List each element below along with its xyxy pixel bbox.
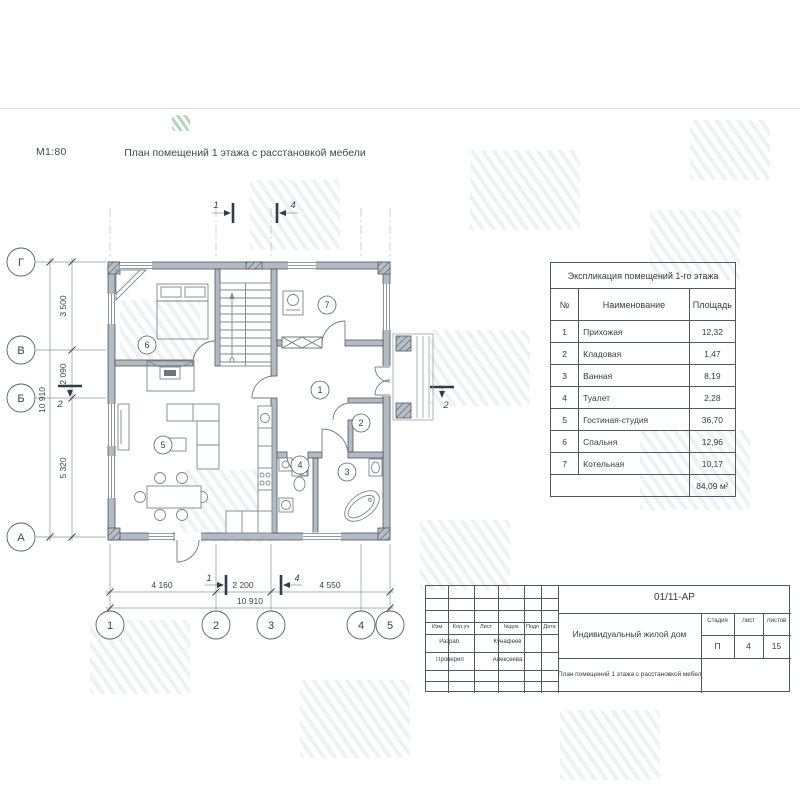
dim-left-1: 3 500	[58, 295, 68, 317]
table-row: 5 Гостиная-студия 36,70	[551, 409, 736, 431]
section-2-right: 2	[442, 400, 449, 411]
table-row: 2 Кладовая 1,47	[551, 343, 736, 365]
axis-v: В	[17, 345, 24, 357]
sheet-number: 4	[734, 641, 763, 651]
window	[108, 294, 116, 324]
table-row-total: 84,09 м²	[551, 475, 736, 497]
cell-num: 1	[551, 321, 579, 343]
section-1-top: 1	[213, 200, 218, 211]
cell-num: 6	[551, 431, 579, 453]
cell-area: 2,28	[689, 387, 735, 409]
axis-bubbles-bottom: 1 2 3 4 5	[96, 611, 404, 639]
bed	[157, 284, 208, 339]
table-row: 3 Ванная 8,19	[551, 365, 736, 387]
room-5-marker: 5	[160, 440, 165, 450]
storage-door	[333, 403, 350, 420]
col-header-area: Площадь	[689, 289, 735, 321]
col-header-name: Наименование	[579, 289, 690, 321]
stage-value: П	[701, 641, 734, 651]
tb-col-list: Лист	[474, 624, 498, 630]
room-1-marker: 1	[317, 385, 322, 395]
axis-bubbles-left: Г В Б А	[7, 248, 35, 551]
cell-num: 4	[551, 387, 579, 409]
axis-2: 2	[213, 620, 219, 632]
cell-total-area: 84,09 м²	[689, 475, 735, 497]
cell-area: 36,70	[689, 409, 735, 431]
section-1-bottom: 1	[206, 573, 211, 584]
window	[383, 284, 391, 330]
dim-bottom-total: 10 910	[237, 596, 263, 606]
explication-title: Экспликация помещений 1-го этажа	[551, 263, 736, 289]
bathtub	[339, 485, 385, 528]
axis-4: 4	[358, 620, 364, 632]
cell-num: 2	[551, 343, 579, 365]
dim-left-3: 5 320	[58, 457, 68, 479]
section-2-left: 2	[56, 399, 63, 410]
tv-console	[118, 404, 129, 450]
room-2-marker: 2	[358, 418, 363, 428]
explication-table: Экспликация помещений 1-го этажа № Наиме…	[550, 262, 736, 497]
cell-name: Кладовая	[579, 343, 690, 365]
cell-name: Прихожая	[579, 321, 690, 343]
cell-num: 7	[551, 453, 579, 475]
table-row: 1 Прихожая 12,32	[551, 321, 736, 343]
axis-a: А	[17, 532, 25, 544]
washing-machine	[279, 498, 293, 512]
entrance-porch	[393, 334, 433, 420]
section-4-bottom: 4	[294, 573, 299, 584]
table-row: 7 Котельная 10,17	[551, 453, 736, 475]
sofa	[167, 404, 219, 469]
room-4-marker: 4	[297, 460, 302, 470]
axis-g: Г	[18, 257, 24, 269]
project-name: Индивидуальный жилой дом	[558, 629, 701, 639]
axis-lines	[110, 208, 390, 258]
tb-col-ndok: №док	[498, 624, 524, 630]
tb-name-developed: Кунафеев	[474, 639, 541, 645]
window	[108, 404, 116, 446]
section-4-top: 4	[290, 200, 295, 211]
dim-left-2: 2 090	[58, 363, 68, 385]
dim-bottom-1: 4 160	[151, 580, 173, 590]
window	[288, 262, 316, 270]
doc-code: 01/11-АР	[558, 592, 791, 603]
boiler	[283, 291, 303, 315]
window	[149, 533, 173, 541]
axis-1: 1	[107, 620, 113, 632]
tb-role-developed: Разраб.	[426, 639, 474, 645]
cell-name: Гостиная-студия	[579, 409, 690, 431]
cell-area: 12,32	[689, 321, 735, 343]
cell-name: Ванная	[579, 365, 690, 387]
cell-name: Котельная	[579, 453, 690, 475]
tb-col-data: Дата	[541, 624, 558, 630]
room-3-marker: 3	[344, 467, 349, 477]
table-row: 6 Спальня 12,96	[551, 431, 736, 453]
bathroom-sink	[369, 459, 382, 476]
cell-name: Туалет	[579, 387, 690, 409]
tb-name-checked: Алексеева	[474, 657, 541, 663]
tb-role-checked: Проверил	[426, 657, 474, 663]
bath-door	[322, 429, 348, 455]
dim-bottom-3: 4 550	[319, 580, 341, 590]
cell-name: Спальня	[579, 431, 690, 453]
cell-num: 5	[551, 409, 579, 431]
axis-3: 3	[268, 620, 274, 632]
tb-col-izm: Изм	[426, 624, 448, 630]
corner-wardrobe	[116, 270, 146, 300]
stage-label: Стадия	[701, 618, 734, 624]
dim-bottom-2: 2 200	[232, 580, 254, 590]
col-header-num: №	[551, 289, 579, 321]
boiler-room-door	[322, 321, 345, 343]
dining-table	[135, 473, 208, 521]
cell-area: 1,47	[689, 343, 735, 365]
cell-area: 10,17	[689, 453, 735, 475]
cell-area: 12,96	[689, 431, 735, 453]
cell-num: 3	[551, 365, 579, 387]
sheet-label: Лист	[734, 618, 763, 624]
sheet-title: План помещений 1 этажа с расстановкой ме…	[558, 671, 701, 678]
living-room-door	[252, 376, 274, 398]
table-row: 4 Туалет 2,28	[551, 387, 736, 409]
axis-5: 5	[387, 620, 393, 632]
tb-col-koluch: Кол.уч	[448, 624, 474, 630]
axis-b: Б	[17, 393, 24, 405]
sheets-total: 15	[763, 641, 790, 651]
small-sink	[279, 458, 292, 471]
drawing-sheet: М1:80 План помещений 1 этажа с расстанов…	[0, 0, 800, 800]
tb-col-podp: Подп	[524, 624, 541, 630]
dim-left-total: 10 910	[37, 387, 47, 413]
room-7-marker: 7	[324, 300, 329, 310]
cell-empty	[551, 475, 690, 497]
balcony-door	[175, 533, 201, 563]
window	[303, 533, 341, 541]
kitchen-counter	[226, 406, 272, 533]
staircase	[220, 283, 271, 366]
window	[120, 262, 152, 270]
cell-area: 8,19	[689, 365, 735, 387]
entrance-door	[375, 366, 391, 396]
bedroom-door	[193, 341, 215, 363]
sheets-label: Листов	[763, 618, 790, 624]
window	[108, 456, 116, 498]
room-6-marker: 6	[144, 340, 149, 350]
title-block: 01/11-АР Изм Кол.уч Лист №док Подп Дата …	[425, 585, 790, 692]
